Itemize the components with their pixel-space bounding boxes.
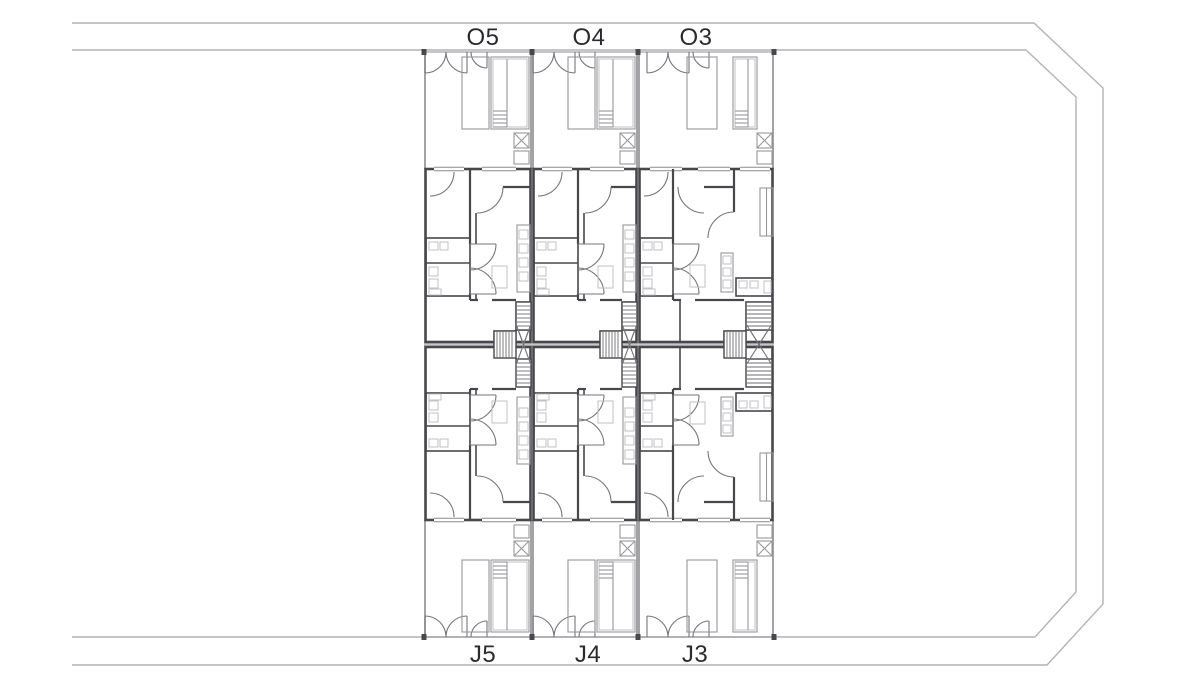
unit-label-J5: J5 [470, 641, 496, 668]
party-wall-band [424, 343, 774, 346]
unit-plan-J4 [532, 302, 638, 637]
wall-cap [772, 634, 777, 640]
wall-cap [422, 634, 427, 640]
floor-plan-canvas: O5O4O3J5J4J3 [0, 0, 1200, 698]
wall-cap [530, 634, 535, 640]
unit-label-O4: O4 [572, 24, 605, 51]
wall-cap [422, 49, 427, 55]
site-plan-drawing: O5O4O3J5J4J3 [0, 0, 1200, 698]
wall-cap [530, 49, 535, 55]
unit-label-J3: J3 [682, 641, 708, 668]
unit-plan-J5 [424, 302, 532, 637]
unit-plan-J3 [638, 302, 774, 637]
wall-cap [772, 49, 777, 55]
wall-cap [636, 49, 641, 55]
unit-label-O5: O5 [466, 24, 499, 51]
unit-label-O3: O3 [679, 24, 712, 51]
wall-cap [636, 634, 641, 640]
unit-label-J4: J4 [575, 641, 601, 668]
